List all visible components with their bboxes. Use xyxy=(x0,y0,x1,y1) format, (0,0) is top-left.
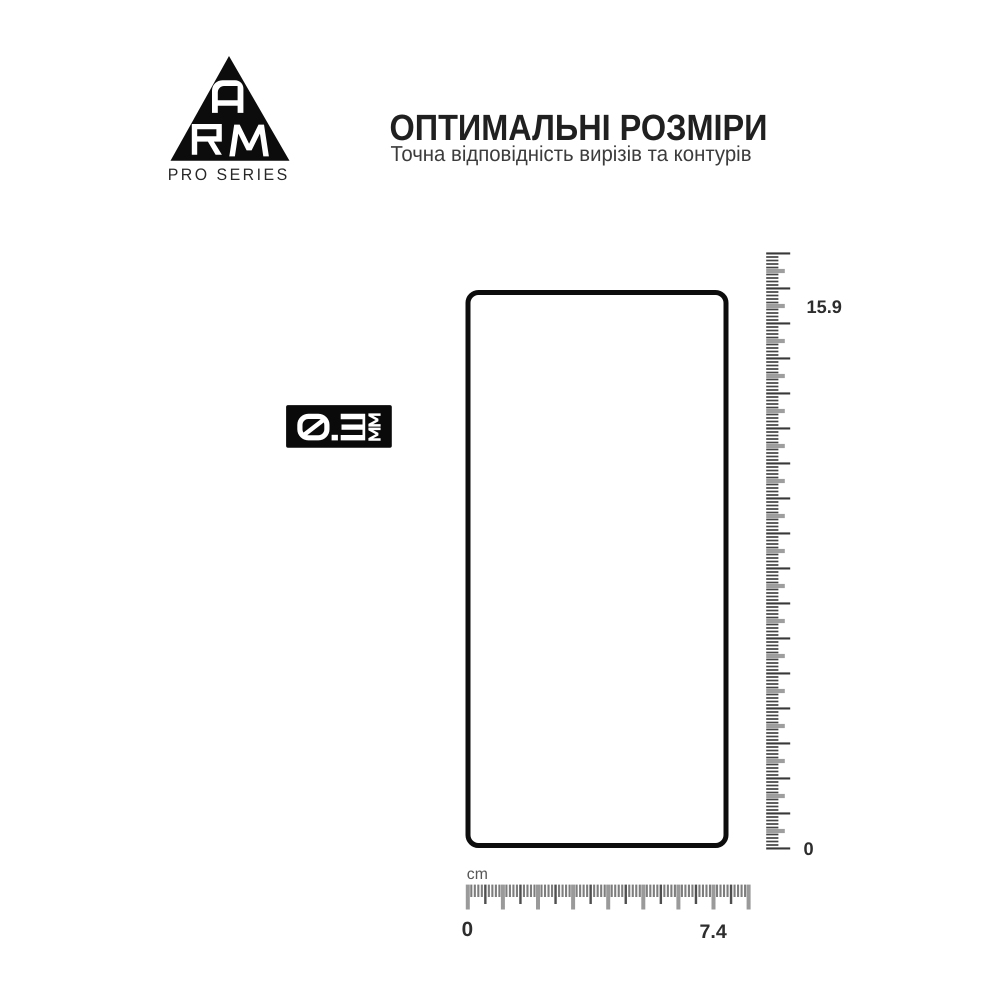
svg-text:PRO SERIES: PRO SERIES xyxy=(168,165,290,184)
svg-text:Точна відповідність вирізів та: Точна відповідність вирізів та контурів xyxy=(391,141,752,166)
svg-text:0: 0 xyxy=(462,918,473,941)
svg-text:cm: cm xyxy=(467,866,488,883)
svg-text:7.4: 7.4 xyxy=(700,921,727,943)
svg-text:0: 0 xyxy=(804,839,814,859)
svg-text:15.9: 15.9 xyxy=(807,297,842,317)
